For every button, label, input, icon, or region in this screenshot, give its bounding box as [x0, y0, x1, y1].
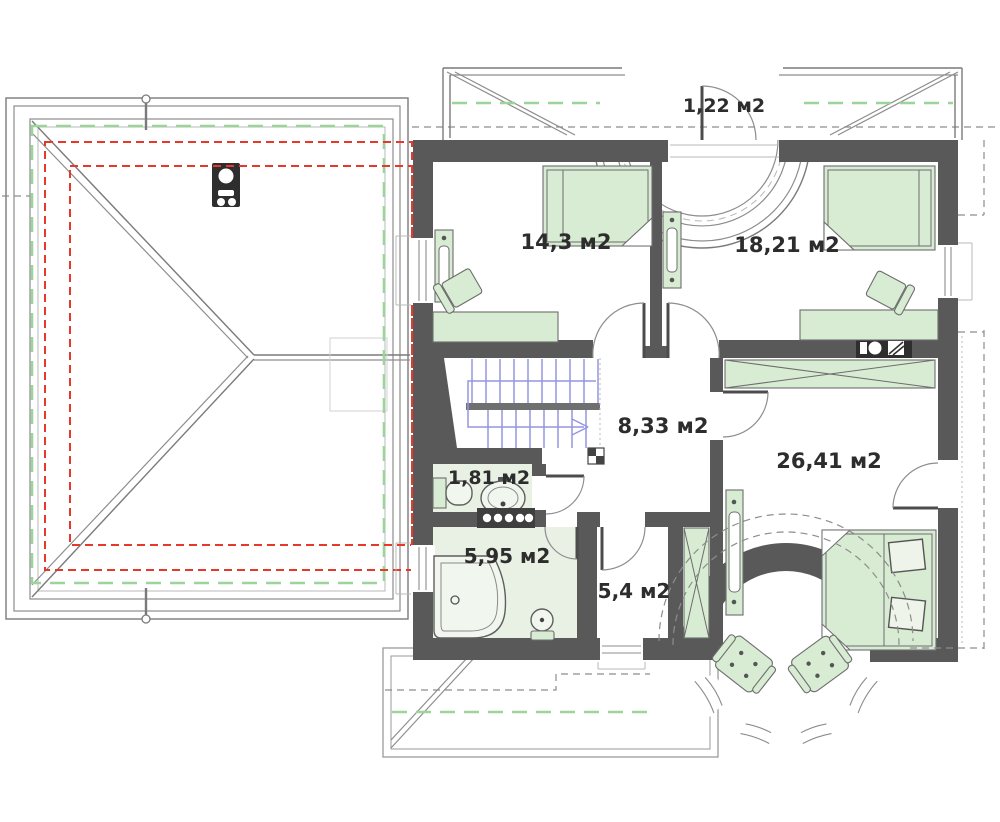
bed-bedroom-right — [824, 166, 935, 250]
room-label-wc: 1,81 м2 — [448, 467, 530, 489]
towel-radiator — [477, 508, 535, 528]
door-wc — [546, 476, 584, 514]
bed-master — [822, 530, 936, 650]
gutter-pin-bottom — [142, 588, 150, 623]
stair-slanted-wall — [428, 358, 457, 448]
skylight-outline — [330, 338, 387, 411]
door-closet — [602, 527, 645, 570]
chimney-icon — [212, 163, 240, 207]
room-label-closet: 5,4 м2 — [598, 579, 671, 603]
floor-plan-page: 1,22 м2 14,3 м2 18,21 м2 8,33 м2 26,41 м… — [0, 0, 1000, 822]
window-bedroom-right — [940, 243, 972, 300]
desk-bedroom-right — [800, 310, 938, 340]
wardrobe-master — [725, 360, 935, 388]
room-label-bedroom-right: 18,21 м2 — [734, 233, 840, 257]
stair-newel-post — [588, 448, 604, 464]
room-label-master-bedroom: 26,41 м2 — [776, 449, 882, 473]
room-label-hall: 8,33 м2 — [618, 414, 709, 438]
gutter-pin-top — [142, 95, 150, 130]
chair-bedroom-right — [864, 268, 915, 316]
door-master-bedroom — [723, 392, 768, 437]
door-bedroom-left — [593, 303, 644, 358]
bathtub — [434, 556, 506, 638]
stair-landing-edge — [466, 403, 600, 410]
top-right-dashed-box — [958, 140, 984, 215]
room-label-bedroom-left: 14,3 м2 — [521, 230, 612, 254]
toilet-bathroom — [531, 609, 554, 640]
window-bathroom — [396, 543, 435, 594]
radiator-master — [726, 490, 743, 615]
window-bedroom-left — [396, 236, 435, 305]
wardrobe-closet — [684, 528, 709, 638]
room-label-bathroom: 5,95 м2 — [464, 544, 551, 568]
door-bedroom-right — [668, 303, 719, 358]
desk-bedroom-left — [433, 312, 558, 342]
door-master-balcony — [893, 463, 938, 508]
balcony-threshold — [670, 145, 779, 157]
wall-chimney-block — [856, 338, 912, 358]
porch-roof — [383, 648, 718, 757]
garage-roof — [2, 95, 412, 623]
floor-plan-drawing: 1,22 м2 14,3 м2 18,21 м2 8,33 м2 26,41 м… — [0, 0, 1000, 822]
radiator-bedroom-right — [663, 212, 681, 288]
room-label-balcony: 1,22 м2 — [683, 95, 765, 117]
